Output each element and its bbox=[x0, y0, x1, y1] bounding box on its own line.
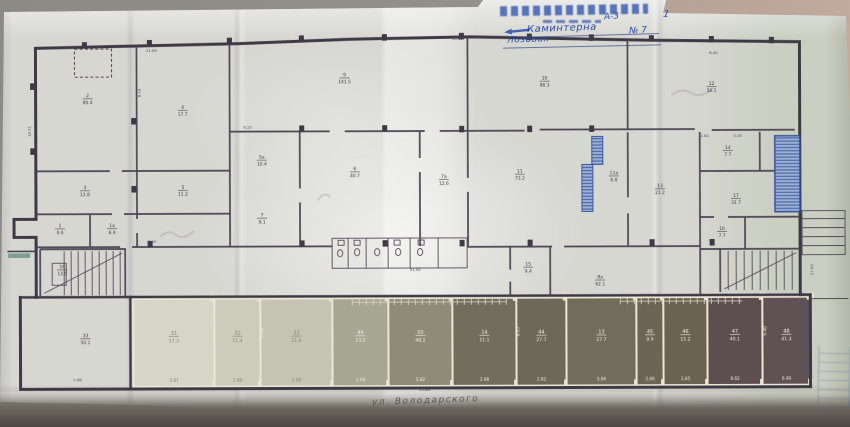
garage-room-number: 33 bbox=[293, 330, 299, 336]
photo-of-floorplan: 3117.35.873211.42.893321.65.894923.22.69… bbox=[0, 0, 850, 427]
garage-room-number: 45 bbox=[647, 329, 653, 335]
faded-blue-stamp bbox=[817, 346, 850, 409]
column-mark bbox=[300, 240, 305, 247]
column-mark bbox=[710, 239, 715, 246]
room-area: 89.4 bbox=[83, 100, 93, 106]
column-mark bbox=[299, 35, 304, 42]
garage-room-dim: 5.89 bbox=[292, 377, 302, 382]
garage-room-area: 21.6 bbox=[291, 338, 301, 344]
garage-side-dim: 6.98 bbox=[259, 328, 264, 338]
room-number: 11а bbox=[610, 170, 619, 176]
garage-room-area: 48.2 bbox=[415, 337, 425, 343]
room-number: 1б bbox=[59, 264, 65, 270]
garage-room-dim: 2.65 bbox=[681, 376, 691, 381]
garage-room-area: 40.1 bbox=[730, 336, 740, 342]
column-mark bbox=[650, 239, 655, 246]
dimension-text: 55.89 bbox=[452, 36, 463, 41]
dimension-text: 4.05 bbox=[733, 133, 742, 138]
room-number: 10 bbox=[542, 76, 548, 82]
room-area: 9.1 bbox=[259, 220, 266, 226]
garage-room-area: 11.4 bbox=[232, 338, 242, 344]
garage-room-dim: 5.60 bbox=[597, 376, 607, 381]
garage-room-number: 14 bbox=[481, 330, 487, 336]
detail-lines bbox=[43, 47, 848, 302]
room-number: 2 bbox=[86, 93, 89, 99]
garage-room-dim: 5.87 bbox=[169, 378, 179, 383]
room-area: 8.9 bbox=[109, 230, 116, 236]
column-mark bbox=[147, 40, 152, 47]
room-area: 13.5 bbox=[57, 271, 67, 277]
garage-room-area: 11.1 bbox=[479, 337, 489, 343]
garage-room-area: 27.7 bbox=[596, 337, 606, 343]
dimension-text: 6.25 bbox=[243, 125, 252, 130]
garage-band: 3117.35.873211.42.893321.65.894923.22.69… bbox=[133, 293, 814, 387]
dimension-text: 6.40 bbox=[709, 50, 718, 55]
room-number: 5а bbox=[259, 155, 265, 161]
column-mark bbox=[131, 118, 136, 125]
room-area: 62.1 bbox=[595, 281, 605, 287]
garage-room-number: 13 bbox=[598, 329, 604, 335]
garage-room-dim: 2.60 bbox=[645, 376, 655, 381]
room-number: 5 bbox=[181, 185, 184, 191]
column-mark bbox=[82, 42, 87, 49]
garage-room-dim: 5.82 bbox=[416, 377, 426, 382]
garage-room-area: 9.9 bbox=[646, 337, 653, 343]
room-number: 7 bbox=[261, 213, 264, 219]
dimension-text: 35.80 bbox=[419, 387, 430, 392]
room-area: 50.1 bbox=[81, 340, 91, 346]
garage-room-area: 41.3 bbox=[781, 336, 791, 342]
stamp-code: А-3 bbox=[604, 11, 620, 22]
floorplan-drawing: 3117.35.873211.42.893321.65.894923.22.69… bbox=[0, 0, 850, 427]
garage-room-dim: 2.69 bbox=[356, 377, 366, 382]
room-number: 1 bbox=[59, 223, 62, 229]
room-number: 11 bbox=[517, 169, 523, 175]
room-area: 7.7 bbox=[719, 233, 726, 239]
room-area: 56.1 bbox=[707, 88, 717, 94]
dimension-text: 2.90 bbox=[148, 239, 157, 244]
garage-room-number: 44 bbox=[538, 330, 544, 336]
room-number: 14 bbox=[725, 145, 731, 151]
room-area: 9.6 bbox=[57, 230, 64, 236]
garage-side-dim: 8.65 bbox=[515, 327, 520, 337]
garage-room-dim: 2.89 bbox=[233, 378, 243, 383]
room-area: 141.5 bbox=[338, 79, 351, 85]
room-number: 3 bbox=[83, 185, 86, 191]
garage-room-dim: 2.62 bbox=[537, 377, 547, 382]
column-mark bbox=[30, 83, 35, 90]
room-number: 4 bbox=[181, 105, 184, 111]
room-number: 8а bbox=[597, 274, 603, 280]
dimension-text: 27.60 bbox=[809, 264, 814, 275]
room-area: 6.8 bbox=[610, 177, 617, 183]
blue-hatched-stairs bbox=[8, 136, 800, 258]
room-area: 12.6 bbox=[439, 181, 449, 187]
dimension-text: 21.69 bbox=[146, 48, 157, 53]
room-number: 12 bbox=[709, 81, 715, 87]
garage-room-area: 27.7 bbox=[536, 337, 546, 343]
room-area: 9.4 bbox=[525, 269, 532, 275]
room-number: 1а bbox=[109, 223, 115, 229]
room-number: 6 bbox=[353, 166, 356, 172]
room-number: 9 bbox=[343, 72, 346, 78]
room-number: 7а bbox=[441, 174, 447, 180]
garage-room-number: 32 bbox=[234, 331, 240, 337]
column-mark bbox=[460, 240, 465, 247]
room-area: 7.7 bbox=[724, 152, 731, 158]
room-number: 33 bbox=[82, 333, 88, 339]
room-number: 17 bbox=[733, 193, 739, 199]
garage-room-dim: 6.40 bbox=[782, 376, 792, 381]
room-area: 10.4 bbox=[257, 162, 267, 168]
garage-room-number: 46 bbox=[682, 329, 688, 335]
room-area: 40.7 bbox=[350, 173, 360, 179]
room-area: 31.7 bbox=[731, 200, 741, 206]
room-number: 16 bbox=[719, 226, 725, 232]
garage-room-number: 50 bbox=[417, 330, 423, 336]
column-mark bbox=[649, 35, 654, 42]
garage-room-area: 15.2 bbox=[680, 337, 690, 343]
garage-room-number: 49 bbox=[357, 330, 363, 336]
column-mark bbox=[299, 125, 304, 132]
room-area: 11.2 bbox=[178, 192, 188, 198]
column-mark bbox=[383, 240, 388, 247]
garage-room-number: 48 bbox=[783, 329, 789, 335]
column-mark bbox=[459, 126, 464, 133]
room-area: 73.2 bbox=[515, 176, 525, 182]
wall-columns bbox=[30, 32, 775, 248]
room-area: 98.3 bbox=[540, 83, 550, 89]
dimension-text: 8.19 bbox=[137, 88, 142, 97]
garage-room-area: 23.2 bbox=[355, 338, 365, 344]
garage-room-dim: 2.68 bbox=[480, 377, 490, 382]
stamp-city-line-2: Лозовая bbox=[507, 34, 550, 45]
column-mark bbox=[382, 34, 387, 41]
garage-room-dim: 8.62 bbox=[730, 376, 740, 381]
column-mark bbox=[589, 125, 594, 132]
column-mark bbox=[769, 37, 774, 44]
room-number: 13 bbox=[657, 183, 663, 189]
column-mark bbox=[528, 240, 533, 247]
garage-room-area: 17.3 bbox=[169, 338, 179, 344]
dimension-text: 1.82 bbox=[700, 133, 709, 138]
dimension-text: 16.51 bbox=[27, 125, 32, 136]
column-mark bbox=[382, 125, 387, 132]
column-mark bbox=[227, 38, 232, 45]
room-number: 15 bbox=[525, 262, 531, 268]
dimension-text: 51.00 bbox=[410, 267, 421, 272]
interior-walls bbox=[35, 36, 800, 298]
room-area: 17.7 bbox=[178, 112, 188, 118]
garage-room-number: 47 bbox=[732, 329, 738, 335]
garage-side-dim: 6.40 bbox=[762, 326, 767, 336]
faint-scribbles bbox=[160, 88, 715, 237]
column-mark bbox=[709, 36, 714, 43]
column-mark bbox=[30, 148, 35, 155]
dimension-text: 5.98 bbox=[73, 377, 82, 382]
garage-room-number: 31 bbox=[171, 331, 177, 337]
room-area: 21.2 bbox=[655, 190, 665, 196]
column-mark bbox=[527, 126, 532, 133]
column-mark bbox=[131, 186, 136, 193]
room-area: 12.8 bbox=[80, 192, 90, 198]
